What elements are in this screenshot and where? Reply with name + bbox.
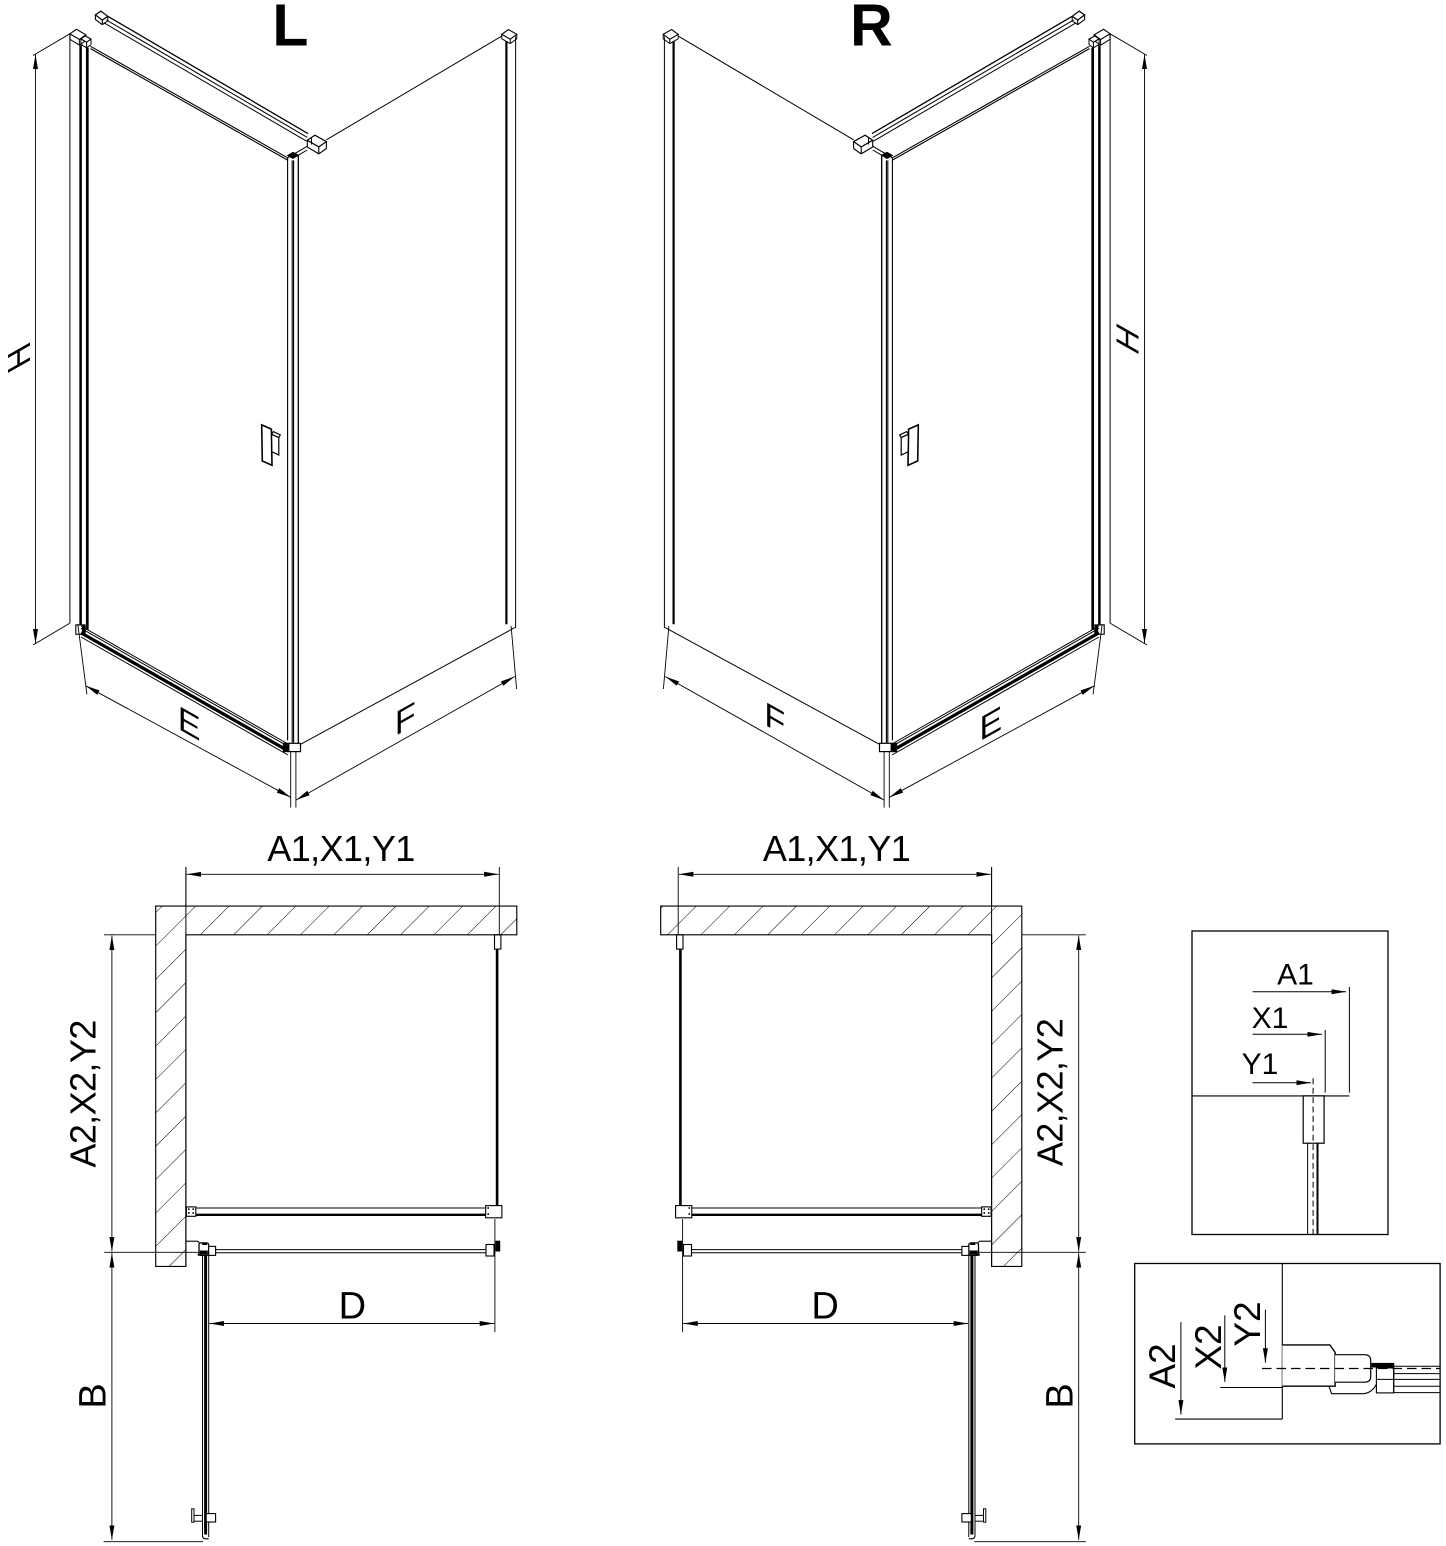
svg-text:A1,X1,Y1: A1,X1,Y1 [763, 828, 910, 869]
svg-text:A1,X1,Y1: A1,X1,Y1 [267, 828, 414, 869]
svg-text:A2,X2,Y2: A2,X2,Y2 [63, 1020, 104, 1167]
svg-text:X2: X2 [1188, 1324, 1229, 1369]
svg-text:D: D [811, 1286, 838, 1328]
svg-text:B: B [1040, 1383, 1082, 1408]
svg-text:Y2: Y2 [1227, 1301, 1268, 1346]
svg-text:R: R [850, 0, 893, 59]
svg-text:D: D [339, 1286, 366, 1328]
svg-text:A2: A2 [1142, 1343, 1183, 1388]
svg-text:X1: X1 [1252, 1002, 1289, 1035]
svg-text:A1: A1 [1277, 959, 1314, 992]
svg-text:A2,X2,Y2: A2,X2,Y2 [1030, 1019, 1071, 1166]
svg-text:Y1: Y1 [1242, 1048, 1279, 1081]
svg-text:L: L [272, 0, 308, 59]
svg-text:B: B [73, 1383, 115, 1408]
